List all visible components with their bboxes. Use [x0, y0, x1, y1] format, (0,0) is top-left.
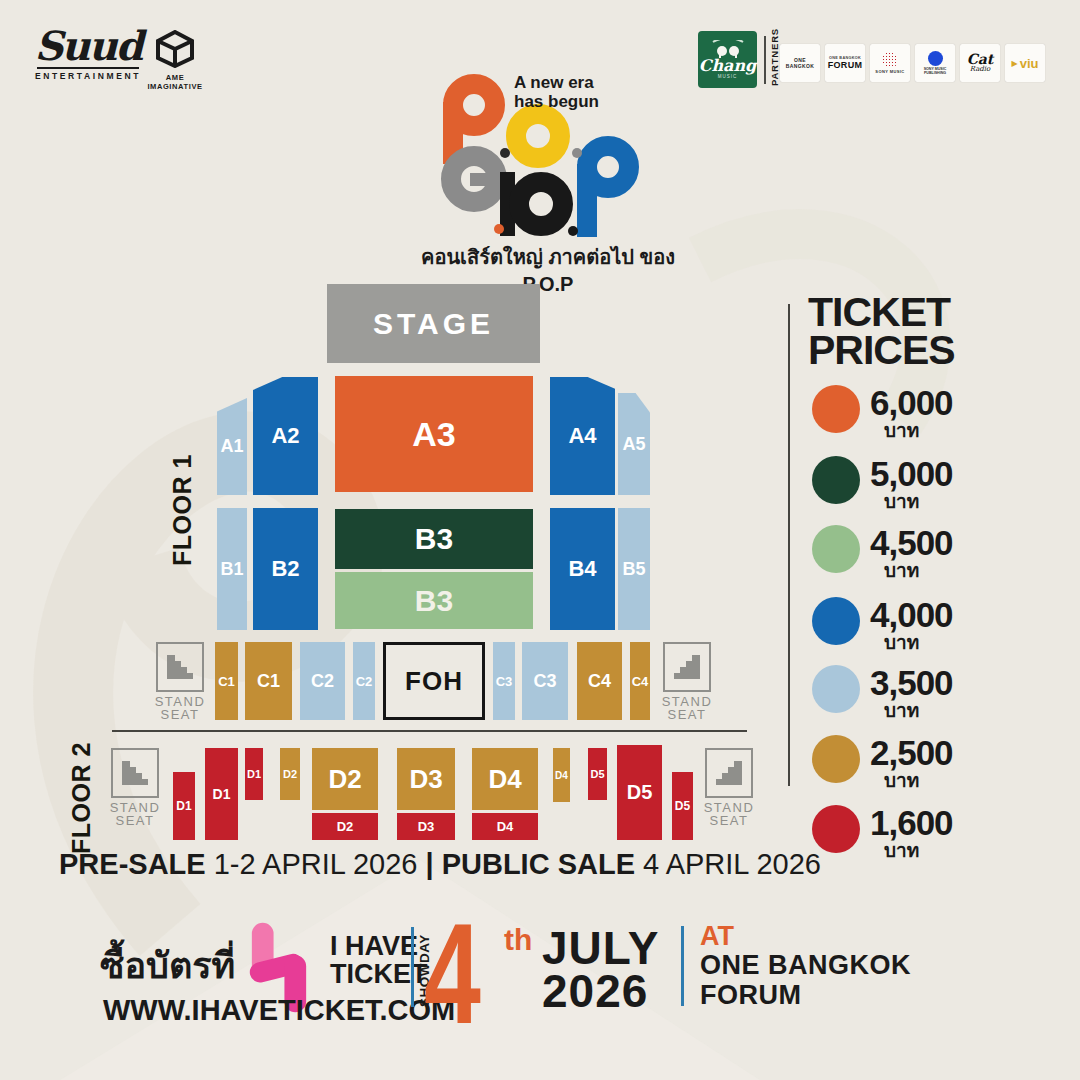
section-c4: C4: [577, 642, 622, 720]
section-c1-narrow-label: C1: [218, 674, 235, 689]
price-color-swatch: [812, 525, 860, 573]
section-d5-small-label: D5: [590, 768, 604, 780]
section-b3-upper-label: B3: [415, 522, 453, 556]
concert-poster: Suud ENTERTAINMENT AME IMAGINATIVE Chang…: [0, 0, 1080, 1080]
stand-seat-label-1: STAND: [662, 695, 713, 708]
section-a2: A2: [253, 377, 318, 495]
stairs-icon: [705, 748, 753, 798]
price-row-2500: 2,500 บาท: [812, 735, 953, 790]
section-c2-narrow: C2: [353, 642, 375, 720]
price-currency: บาท: [884, 771, 953, 790]
price-color-swatch: [812, 665, 860, 713]
ticket-website: WWW.IHAVETICKET.COM: [103, 996, 455, 1025]
stand-seat-floor1-left: STAND SEAT: [145, 642, 215, 722]
section-d5-low: D5: [672, 772, 693, 840]
section-c2: C2: [300, 642, 345, 720]
section-d1-tall: D1: [205, 748, 238, 840]
section-d4-small-label: D4: [555, 770, 568, 781]
section-d5-tall: D5: [617, 745, 662, 840]
section-c2-label: C2: [311, 671, 334, 692]
section-d3-red-label: D3: [418, 819, 435, 834]
sony-publishing-circle-icon: [928, 51, 943, 66]
show-day-number: 4: [424, 903, 481, 1045]
section-b4-label: B4: [568, 556, 596, 582]
cat-radio-wordmark: Radio: [970, 65, 991, 73]
stand-seat-label-2: SEAT: [662, 708, 713, 721]
price-row-1600: 1,600 บาท: [812, 805, 953, 860]
ticket-prices-title-line2: PRICES: [808, 332, 955, 370]
section-c4-narrow: C4: [630, 642, 650, 720]
public-sale-label: PUBLIC SALE: [442, 848, 635, 880]
section-d4-label: D4: [488, 764, 521, 795]
price-value: 4,000: [870, 597, 953, 632]
section-d5-small: D5: [588, 748, 607, 800]
price-currency: บาท: [884, 701, 953, 720]
price-row-6000: 6,000 บาท: [812, 385, 953, 440]
section-d1-low-label: D1: [176, 799, 191, 813]
section-c1: C1: [245, 642, 292, 720]
price-row-4000: 4,000 บาท: [812, 597, 953, 652]
stand-seat-label-1: STAND: [704, 801, 755, 814]
partner-sony-music: SONY MUSIC: [870, 44, 910, 82]
section-d2-small: D2: [280, 748, 300, 800]
price-value: 5,000: [870, 456, 953, 491]
sale-divider: |: [425, 848, 433, 880]
viu-wordmark: viu: [1020, 56, 1039, 71]
venue-name-line2: FORUM: [700, 982, 801, 1009]
section-b5: B5: [618, 508, 650, 630]
price-value: 2,500: [870, 735, 953, 770]
partner-viu: ▶ viu: [1005, 44, 1045, 82]
section-a1: A1: [217, 398, 247, 495]
logo-letter-o-black: [509, 172, 573, 236]
section-b5-label: B5: [622, 559, 645, 580]
section-c4-label: C4: [588, 671, 611, 692]
section-c3-narrow: C3: [493, 642, 515, 720]
sony-music-label: SONY MUSIC: [875, 69, 904, 74]
tagline-line2: has begun: [514, 92, 599, 111]
sale-dates-line: PRE-SALE 1-2 APRIL 2026 | PUBLIC SALE 4 …: [55, 848, 825, 881]
stand-seat-label-1: STAND: [155, 695, 206, 708]
section-d4: D4: [472, 748, 538, 810]
logo-letter-o-yellow: [506, 104, 570, 168]
buy-tickets-thai-label: ซื้อบัตรที่: [100, 948, 235, 984]
section-c3-narrow-label: C3: [496, 674, 513, 689]
section-d4-red-label: D4: [497, 819, 514, 834]
section-d3-red: D3: [397, 813, 455, 840]
price-value: 3,500: [870, 665, 953, 700]
forum-wordmark: FORUM: [828, 60, 863, 70]
floor1-label: FLOOR 1: [168, 450, 196, 570]
ame-cube-icon: [155, 30, 195, 68]
section-a5-label: A5: [622, 434, 645, 455]
stand-seat-label-2: SEAT: [704, 814, 755, 827]
price-currency: บาท: [884, 633, 953, 652]
section-b2: B2: [253, 508, 318, 630]
floor-divider-line: [112, 730, 747, 732]
partner-sony-music-publishing: SONY MUSIC PUBLISHING: [915, 44, 955, 82]
showday-divider-line: [411, 927, 414, 1007]
section-d5-low-label: D5: [675, 799, 690, 813]
section-d1-small: D1: [245, 748, 263, 800]
section-c1-narrow: C1: [215, 642, 238, 720]
stand-seat-label-1: STAND: [110, 801, 161, 814]
foh-label: FOH: [405, 666, 463, 697]
tagline-line1: A new era: [514, 73, 599, 92]
stand-seat-floor1-right: STAND SEAT: [652, 642, 722, 722]
price-color-swatch: [812, 735, 860, 783]
venue-at-label: AT: [700, 923, 734, 950]
cat-wordmark: Cat: [967, 53, 994, 66]
section-d2-red: D2: [312, 813, 378, 840]
price-currency: บาท: [884, 421, 953, 440]
section-a5: A5: [618, 393, 650, 495]
partner-one-bangkok-forum: ONE BANGKOK FORUM: [825, 44, 865, 82]
show-year: 2026: [542, 968, 648, 1014]
section-d1-low: D1: [173, 772, 195, 840]
section-b3-lower: B3: [335, 572, 533, 629]
section-d2-label: D2: [328, 764, 361, 795]
partners-divider: [764, 36, 766, 84]
viu-play-icon: ▶: [1012, 59, 1018, 68]
sony-publishing-label-2: PUBLISHING: [924, 71, 946, 75]
section-a4: A4: [550, 377, 615, 495]
logo-letter-p-blue-stem: [577, 164, 597, 237]
section-foh: FOH: [383, 642, 485, 720]
venue-name-line1: ONE BANGKOK: [700, 952, 911, 979]
logo-dot-3: [494, 224, 504, 234]
price-row-4500: 4,500 บาท: [812, 525, 953, 580]
chang-logo: Chang MUSIC: [698, 31, 757, 88]
partners-label: PARTNERS: [769, 34, 780, 86]
price-row-3500: 3,500 บาท: [812, 665, 953, 720]
section-c2-narrow-label: C2: [356, 674, 373, 689]
section-d5-tall-label: D5: [627, 781, 653, 804]
sony-music-globe-icon: [882, 52, 898, 68]
presale-label: PRE-SALE: [59, 848, 206, 880]
partner-cat-radio: Cat Radio: [960, 44, 1000, 82]
stand-seat-floor2-left: STAND SEAT: [100, 748, 170, 828]
section-b3-lower-label: B3: [415, 584, 453, 618]
logo-dot-2: [572, 148, 582, 158]
section-d2-red-label: D2: [337, 819, 354, 834]
logo-tagline: A new era has begun: [514, 73, 599, 111]
stage-label: STAGE: [373, 307, 494, 341]
price-row-5000: 5,000 บาท: [812, 456, 953, 511]
price-currency: บาท: [884, 561, 953, 580]
section-c3-label: C3: [533, 671, 556, 692]
section-c3: C3: [522, 642, 568, 720]
price-value: 4,500: [870, 525, 953, 560]
suud-wordmark: Suud: [33, 26, 143, 66]
price-color-swatch: [812, 597, 860, 645]
section-a3-label: A3: [412, 415, 455, 454]
prices-divider-line: [788, 304, 790, 786]
partner-one-bangkok: ONE BANGKOK: [780, 44, 820, 82]
ame-logo: AME IMAGINATIVE: [146, 30, 204, 91]
presale-date: 1-2 APRIL 2026: [214, 848, 418, 880]
section-d1-tall-label: D1: [213, 786, 231, 802]
section-b4: B4: [550, 508, 615, 630]
section-a1-label: A1: [220, 436, 243, 457]
section-d2: D2: [312, 748, 378, 810]
suud-sub-label: ENTERTAINMENT: [33, 71, 143, 81]
section-d3: D3: [397, 748, 455, 810]
section-d1-small-label: D1: [247, 768, 261, 780]
stairs-icon: [663, 642, 711, 692]
logo-dot-4: [568, 226, 578, 236]
stand-seat-floor2-right: STAND SEAT: [694, 748, 764, 828]
price-value: 1,600: [870, 805, 953, 840]
ticket-prices-title: TICKET PRICES: [808, 294, 955, 369]
chang-wordmark: Chang: [699, 58, 757, 74]
section-b3-upper: B3: [335, 509, 533, 569]
section-d2-small-label: D2: [283, 768, 297, 780]
stand-seat-label-2: SEAT: [110, 814, 161, 827]
section-b2-label: B2: [271, 556, 299, 582]
price-currency: บาท: [884, 492, 953, 511]
section-d4-small: D4: [553, 748, 570, 802]
stairs-icon: [111, 748, 159, 798]
chang-sub: MUSIC: [718, 74, 738, 79]
show-day-ordinal: th: [504, 925, 532, 955]
suud-logo: Suud ENTERTAINMENT: [33, 26, 143, 81]
floor2-label: FLOOR 2: [67, 738, 95, 858]
one-bangkok-wordmark: ONE BANGKOK: [780, 57, 820, 69]
price-color-swatch: [812, 385, 860, 433]
price-value: 6,000: [870, 385, 953, 420]
section-c4-narrow-label: C4: [632, 674, 649, 689]
section-a4-label: A4: [568, 423, 596, 449]
section-a3: A3: [335, 376, 533, 492]
stand-seat-label-2: SEAT: [155, 708, 206, 721]
price-color-swatch: [812, 456, 860, 504]
stage: STAGE: [327, 284, 540, 363]
logo-dot-1: [500, 148, 510, 158]
section-d3-label: D3: [409, 764, 442, 795]
public-sale-date: 4 APRIL 2026: [643, 848, 821, 880]
venue-divider-line: [681, 926, 684, 1006]
section-b1-label: B1: [220, 559, 243, 580]
ame-label: AME IMAGINATIVE: [146, 73, 204, 91]
section-a2-label: A2: [271, 423, 299, 449]
price-currency: บาท: [884, 841, 953, 860]
section-b1: B1: [217, 508, 247, 630]
price-color-swatch: [812, 805, 860, 853]
section-c1-label: C1: [257, 671, 280, 692]
section-d4-red: D4: [472, 813, 538, 840]
stairs-icon: [156, 642, 204, 692]
